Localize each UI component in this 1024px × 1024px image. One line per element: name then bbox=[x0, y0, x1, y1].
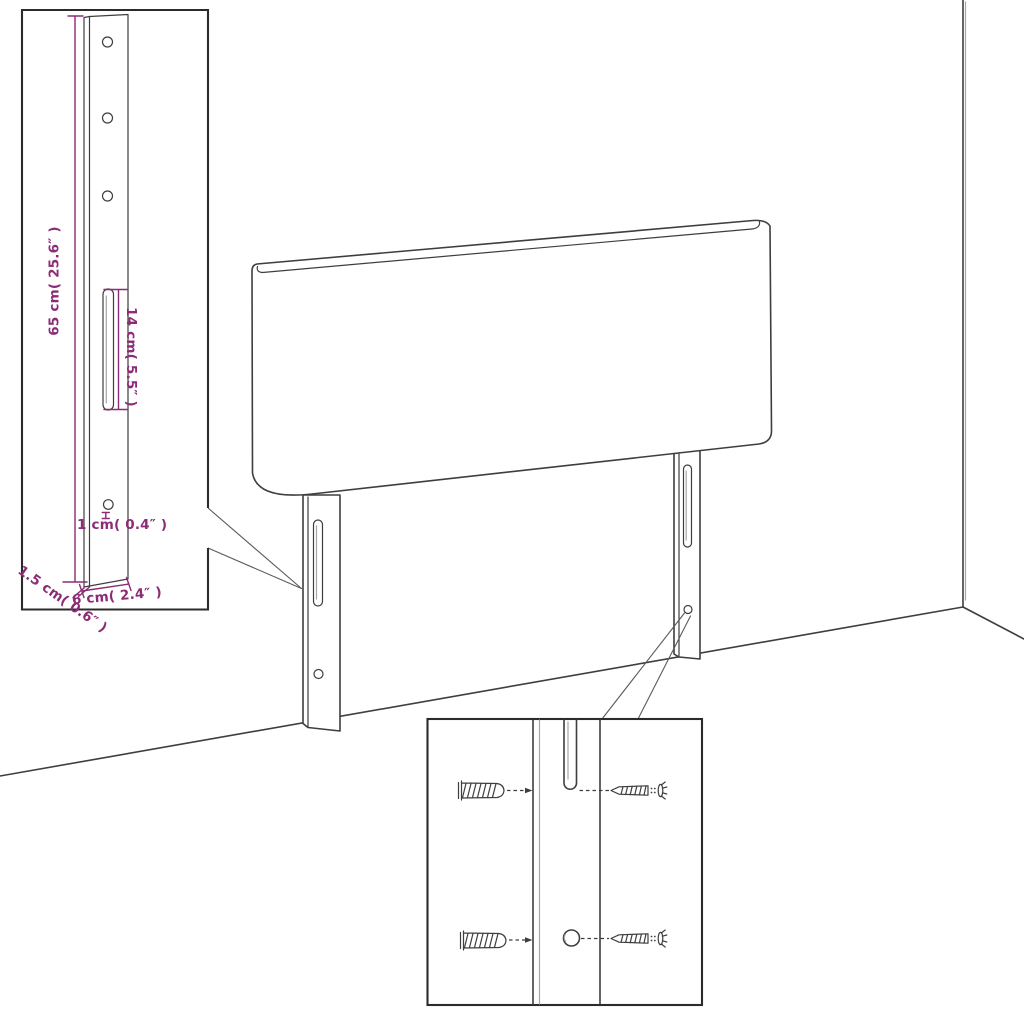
right-leg-hole bbox=[684, 606, 692, 614]
screw-top-dot bbox=[651, 788, 653, 790]
screw-top-dot bbox=[654, 788, 656, 790]
dimension-label-height: 65 cm( 25.6″ ) bbox=[48, 226, 62, 335]
mounting-detail-inset bbox=[428, 719, 703, 1005]
screw-bottom-dot bbox=[654, 936, 656, 938]
right-leg-slot bbox=[684, 465, 692, 547]
dimension-label-hole-diameter: 1 cm( 0.4″ ) bbox=[77, 519, 167, 533]
inset-leg-drawing bbox=[84, 15, 128, 588]
inset-callout-lower bbox=[208, 548, 302, 589]
screw-top-dot bbox=[651, 792, 653, 794]
diagram-linework bbox=[0, 0, 1024, 1024]
detail-callout-right bbox=[638, 616, 691, 719]
inset-callout-upper bbox=[208, 508, 302, 589]
assembly-diagram: 65 cm( 25.6″ ) 14 cm( 5.5″ ) 1 cm( 0.4″ … bbox=[0, 0, 1024, 1024]
dimension-label-slot-length: 14 cm( 5.5″ ) bbox=[123, 307, 137, 407]
left-leg-slot bbox=[314, 520, 323, 606]
screw-bottom-dot bbox=[651, 940, 653, 942]
screw-bottom-dot bbox=[651, 936, 653, 938]
left-leg-hole bbox=[314, 670, 323, 679]
right-leg-slot-outline bbox=[684, 465, 692, 547]
floor-line-right bbox=[963, 607, 1024, 639]
screw-top-dot bbox=[654, 792, 656, 794]
detail-callout-left bbox=[602, 613, 685, 719]
inset-callout-lines bbox=[208, 508, 302, 589]
left-leg-slot-outline bbox=[314, 520, 323, 606]
screw-bottom-dot bbox=[654, 940, 656, 942]
